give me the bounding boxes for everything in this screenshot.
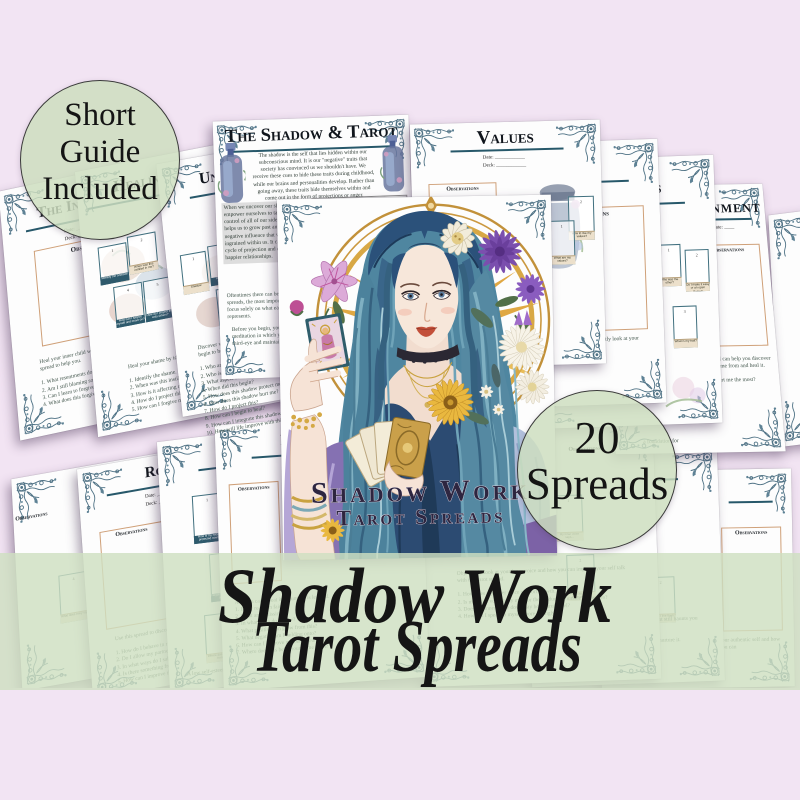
svg-text:Tarot Spreads: Tarot Spreads	[252, 606, 582, 688]
svg-text:Tarot Spreads: Tarot Spreads	[336, 503, 502, 531]
